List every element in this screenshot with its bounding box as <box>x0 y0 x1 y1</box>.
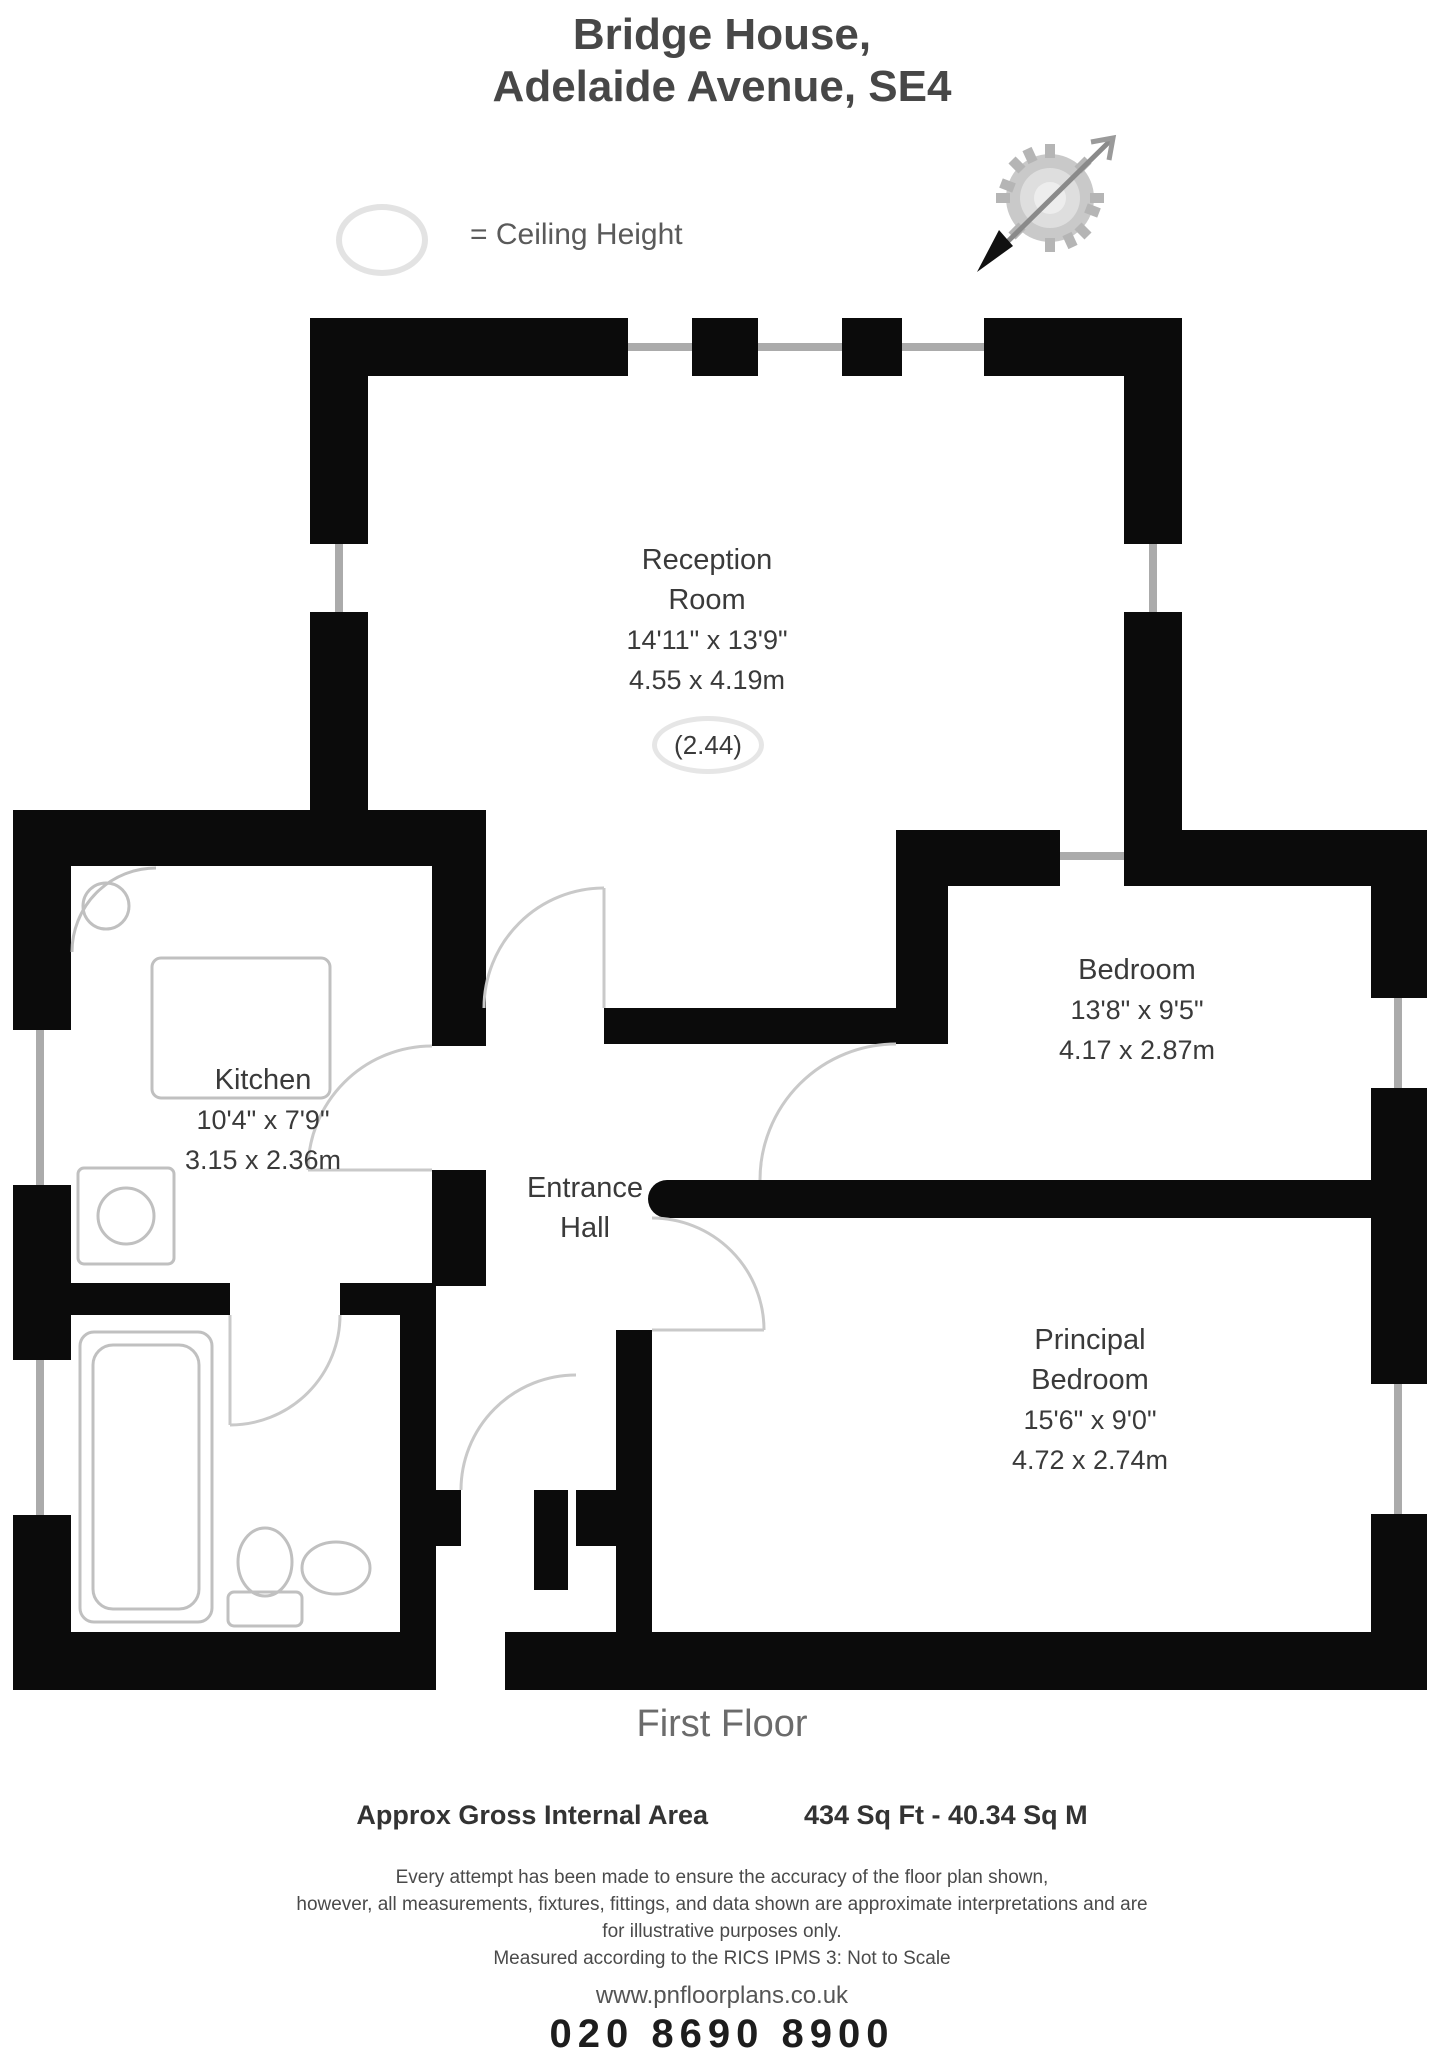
wall-segment <box>400 1315 436 1632</box>
kitchen-label: Kitchen 10'4" x 7'9" 3.15 x 2.36m <box>185 1060 341 1180</box>
room-name: Entrance <box>527 1168 643 1208</box>
wall-segment <box>1124 318 1182 544</box>
wall-segment <box>432 866 486 1046</box>
window-line <box>36 1360 44 1515</box>
wall-segment <box>432 1170 486 1286</box>
wall-segment <box>648 1180 1427 1218</box>
principal-bedroom-label: Principal Bedroom 15'6" x 9'0" 4.72 x 2.… <box>1012 1320 1168 1480</box>
bathtub-outer <box>80 1332 212 1622</box>
reception-room-label: Reception Room 14'11" x 13'9" 4.55 x 4.1… <box>626 540 787 700</box>
room-dims-metric: 4.72 x 2.74m <box>1012 1440 1168 1480</box>
principal-bedroom-door-arc <box>652 1218 764 1330</box>
reception-door-arc <box>484 888 604 1008</box>
wall-segment <box>13 810 71 1030</box>
wall-segment <box>616 1330 652 1632</box>
wall-segment <box>340 1283 436 1315</box>
disclaimer-line: Measured according to the RICS IPMS 3: N… <box>296 1945 1147 1972</box>
room-dims-metric: 3.15 x 2.36m <box>185 1140 341 1180</box>
page-title-line1: Bridge House, <box>573 10 871 60</box>
room-dims-metric: 4.55 x 4.19m <box>626 660 787 700</box>
disclaimer-line: Every attempt has been made to ensure th… <box>296 1864 1147 1891</box>
phone-number: 020 8690 8900 <box>550 2012 895 2048</box>
website-link[interactable]: www.pnfloorplans.co.uk <box>596 1982 848 2010</box>
window-line <box>628 343 692 351</box>
wall-segment <box>13 810 486 866</box>
entrance-hall-label: Entrance Hall <box>527 1168 643 1248</box>
area-label: Approx Gross Internal Area <box>356 1800 708 1831</box>
legend-label: = Ceiling Height <box>470 218 683 252</box>
wall-segment <box>13 1632 436 1690</box>
room-name: Kitchen <box>185 1060 341 1100</box>
compass-north-arrow-icon <box>965 118 1135 288</box>
room-dims-imperial: 15'6" x 9'0" <box>1012 1400 1168 1440</box>
disclaimer-text: Every attempt has been made to ensure th… <box>296 1864 1147 1972</box>
room-name: Room <box>626 580 787 620</box>
room-dims-metric: 4.17 x 2.87m <box>1059 1030 1215 1070</box>
north-arrow <box>977 138 1113 272</box>
kitchen-corner-unit <box>72 868 156 952</box>
floor-name-label: First Floor <box>637 1703 808 1746</box>
window-line <box>902 343 984 351</box>
window-line <box>1394 998 1402 1088</box>
bedroom-label: Bedroom 13'8" x 9'5" 4.17 x 2.87m <box>1059 950 1215 1070</box>
bedroom-door-arc <box>760 1044 896 1180</box>
window-line <box>1060 852 1124 860</box>
window-line <box>335 544 343 612</box>
room-dims-imperial: 14'11" x 13'9" <box>626 620 787 660</box>
window-line <box>1394 1384 1402 1514</box>
window-line <box>36 1030 44 1185</box>
kitchen-appliance <box>78 1168 174 1264</box>
page-title-line2: Adelaide Avenue, SE4 <box>493 62 952 112</box>
room-dims-imperial: 10'4" x 7'9" <box>185 1100 341 1140</box>
room-dims-imperial: 13'8" x 9'5" <box>1059 990 1215 1030</box>
wall-segment <box>13 1283 230 1315</box>
wall-segment <box>1124 612 1182 830</box>
disclaimer-line: for illustrative purposes only. <box>296 1918 1147 1945</box>
compass-rose <box>996 144 1104 252</box>
wall-segment <box>505 1632 1427 1690</box>
wall-segment <box>310 318 368 544</box>
room-name: Reception <box>626 540 787 580</box>
toilet-bowl <box>238 1528 292 1596</box>
room-name: Bedroom <box>1012 1360 1168 1400</box>
toilet-cistern <box>228 1592 302 1626</box>
front-door-arc <box>461 1375 576 1490</box>
ceiling-height-value: (2.44) <box>674 730 742 761</box>
bathroom-door-arc <box>230 1315 340 1425</box>
wall-segment <box>896 830 1060 886</box>
wall-segment <box>604 1008 896 1044</box>
gross-internal-area-row: Approx Gross Internal Area 434 Sq Ft - 4… <box>356 1800 1087 1831</box>
kitchen-appliance-drum <box>98 1188 154 1244</box>
area-value: 434 Sq Ft - 40.34 Sq M <box>804 1800 1088 1831</box>
room-name: Hall <box>527 1208 643 1248</box>
wall-segment <box>13 1185 71 1360</box>
ceiling-height-ellipse-icon <box>336 204 428 276</box>
wall-segment <box>400 1490 461 1546</box>
kitchen-sink-bowl <box>83 883 129 929</box>
wall-segment <box>896 886 948 1044</box>
bathtub-inner <box>93 1345 199 1609</box>
bathroom-sink <box>302 1542 370 1594</box>
wall-segment <box>1371 830 1427 998</box>
room-name: Bedroom <box>1059 950 1215 990</box>
wall-segment <box>842 318 902 376</box>
wall-segment <box>1371 1088 1427 1384</box>
window-line <box>1149 544 1157 612</box>
front-door-leaf <box>534 1490 568 1590</box>
disclaimer-line: however, all measurements, fixtures, fit… <box>296 1891 1147 1918</box>
ceiling-height-annotation: (2.44) <box>652 716 764 774</box>
room-name: Principal <box>1012 1320 1168 1360</box>
wall-segment <box>692 318 758 376</box>
floorplan-page: Bridge House, Adelaide Avenue, SE4 = Cei… <box>0 0 1445 2048</box>
wall-segment <box>576 1490 652 1546</box>
window-line <box>758 343 842 351</box>
